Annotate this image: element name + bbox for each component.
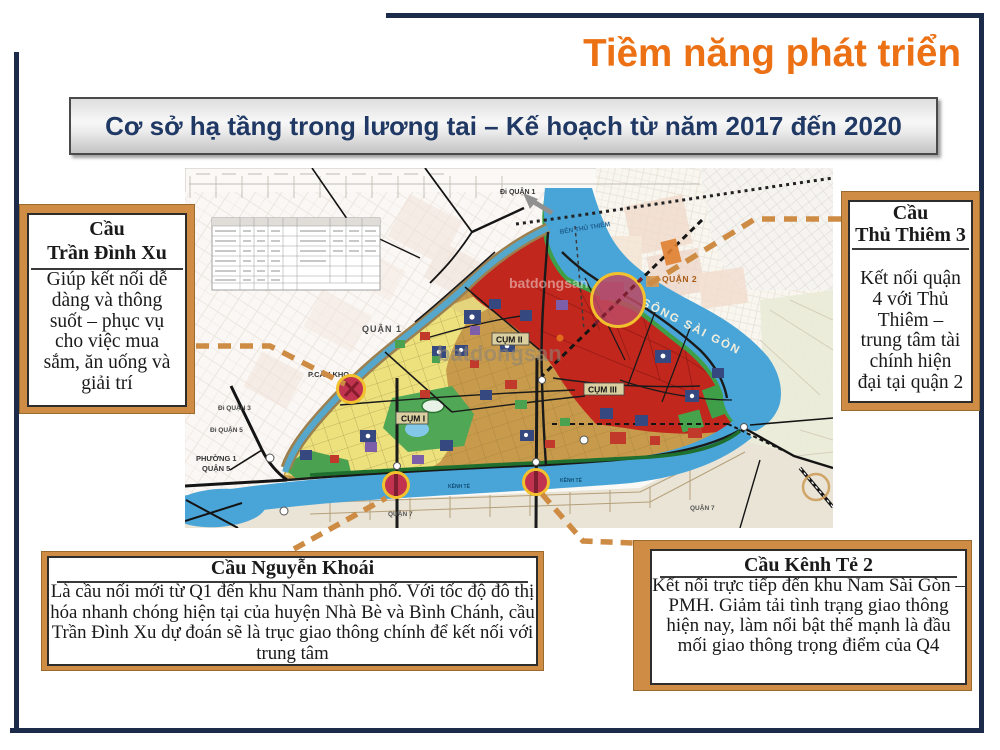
svg-text:KÊNH TẺ: KÊNH TẺ bbox=[448, 482, 471, 490]
svg-text:CỤM I: CỤM I bbox=[401, 414, 425, 424]
svg-text:QUẬN 1: QUẬN 1 bbox=[362, 323, 402, 334]
svg-text:QUẬN 7: QUẬN 7 bbox=[388, 509, 413, 518]
svg-text:QUẬN 5: QUẬN 5 bbox=[202, 464, 230, 473]
svg-text:CỤM III: CỤM III bbox=[588, 385, 617, 395]
svg-text:Đi QUẬN 3: Đi QUẬN 3 bbox=[218, 403, 251, 412]
svg-text:Đi QUẬN 1: Đi QUẬN 1 bbox=[500, 187, 536, 196]
svg-text:CỤM II: CỤM II bbox=[496, 335, 522, 345]
svg-text:PHƯỜNG 1: PHƯỜNG 1 bbox=[196, 454, 237, 463]
svg-text:Đi QUẬN 5: Đi QUẬN 5 bbox=[210, 425, 243, 434]
svg-text:QUẬN 2: QUẬN 2 bbox=[662, 273, 697, 284]
svg-text:batdongsan: batdongsan bbox=[509, 275, 588, 291]
svg-text:KÊNH TẺ: KÊNH TẺ bbox=[560, 476, 583, 484]
svg-text:QUẬN 7: QUẬN 7 bbox=[690, 503, 715, 512]
